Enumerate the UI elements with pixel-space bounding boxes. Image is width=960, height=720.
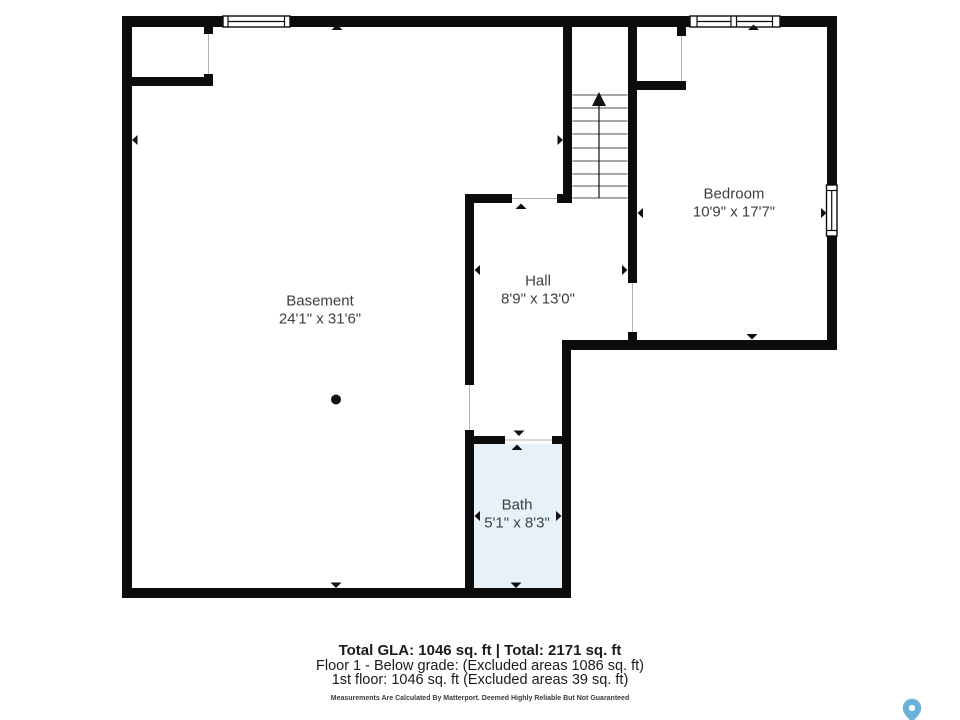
window-symbol-right-wall	[827, 185, 838, 236]
summary-floor1: Floor 1 - Below grade: (Excluded areas 1…	[0, 659, 960, 674]
wall-segment	[563, 16, 572, 203]
room-label-basement: Basement 24'1" x 31'6"	[279, 293, 361, 328]
marker-left-icon	[638, 208, 644, 218]
room-name: Hall	[501, 273, 575, 291]
marker-left-icon	[475, 265, 481, 275]
wall-segment	[204, 74, 213, 86]
room-label-bath: Bath 5'1" x 8'3"	[484, 497, 550, 532]
wall-segment	[122, 588, 571, 598]
room-dimensions: 8'9" x 13'0"	[501, 290, 575, 308]
wall-segment	[557, 194, 572, 203]
marker-down-icon	[331, 583, 342, 589]
stairs	[573, 92, 628, 198]
wall-segment	[122, 77, 213, 86]
window-symbol-top-left	[223, 16, 290, 27]
marker-down-icon	[514, 431, 525, 437]
marker-down-icon	[747, 334, 758, 340]
wall-segment	[677, 16, 686, 36]
room-name: Bedroom	[693, 186, 775, 204]
wall-segment	[827, 16, 837, 350]
summary-disclaimer: Measurements Are Calculated By Matterpor…	[0, 695, 960, 703]
room-dimensions: 24'1" x 31'6"	[279, 310, 361, 328]
room-dimensions: 5'1" x 8'3"	[484, 514, 550, 532]
support-column-dot	[331, 395, 341, 405]
wall-segment	[562, 340, 571, 598]
room-dimensions: 10'9" x 17'7"	[693, 203, 775, 221]
summary-totals: Total GLA: 1046 sq. ft | Total: 2171 sq.…	[0, 644, 960, 659]
wall-segment	[562, 340, 837, 350]
wall-segment	[465, 194, 474, 385]
wall-segment	[552, 436, 571, 444]
summary-first-floor: 1st floor: 1046 sq. ft (Excluded areas 3…	[0, 673, 960, 688]
marker-right-icon	[821, 208, 827, 218]
wall-segment	[628, 332, 637, 350]
floorplan-summary: Total GLA: 1046 sq. ft | Total: 2171 sq.…	[0, 644, 960, 703]
room-label-bedroom: Bedroom 10'9" x 17'7"	[693, 186, 775, 221]
room-name: Bath	[484, 497, 550, 515]
wall-segment	[204, 16, 213, 34]
marker-right-icon	[558, 135, 564, 145]
marker-up-icon	[516, 204, 527, 210]
wall-segment	[628, 16, 637, 283]
marker-right-icon	[622, 265, 628, 275]
room-name: Basement	[279, 293, 361, 311]
floor-plan	[0, 0, 960, 720]
window-symbol-top-right	[690, 16, 780, 27]
room-label-hall: Hall 8'9" x 13'0"	[501, 273, 575, 308]
wall-segment	[122, 16, 132, 598]
wall-segment	[465, 436, 474, 588]
floor-plan-page: { "rooms": { "basement": {"name": "Basem…	[0, 0, 960, 720]
wall-segment	[628, 81, 686, 90]
marker-left-icon	[132, 135, 138, 145]
